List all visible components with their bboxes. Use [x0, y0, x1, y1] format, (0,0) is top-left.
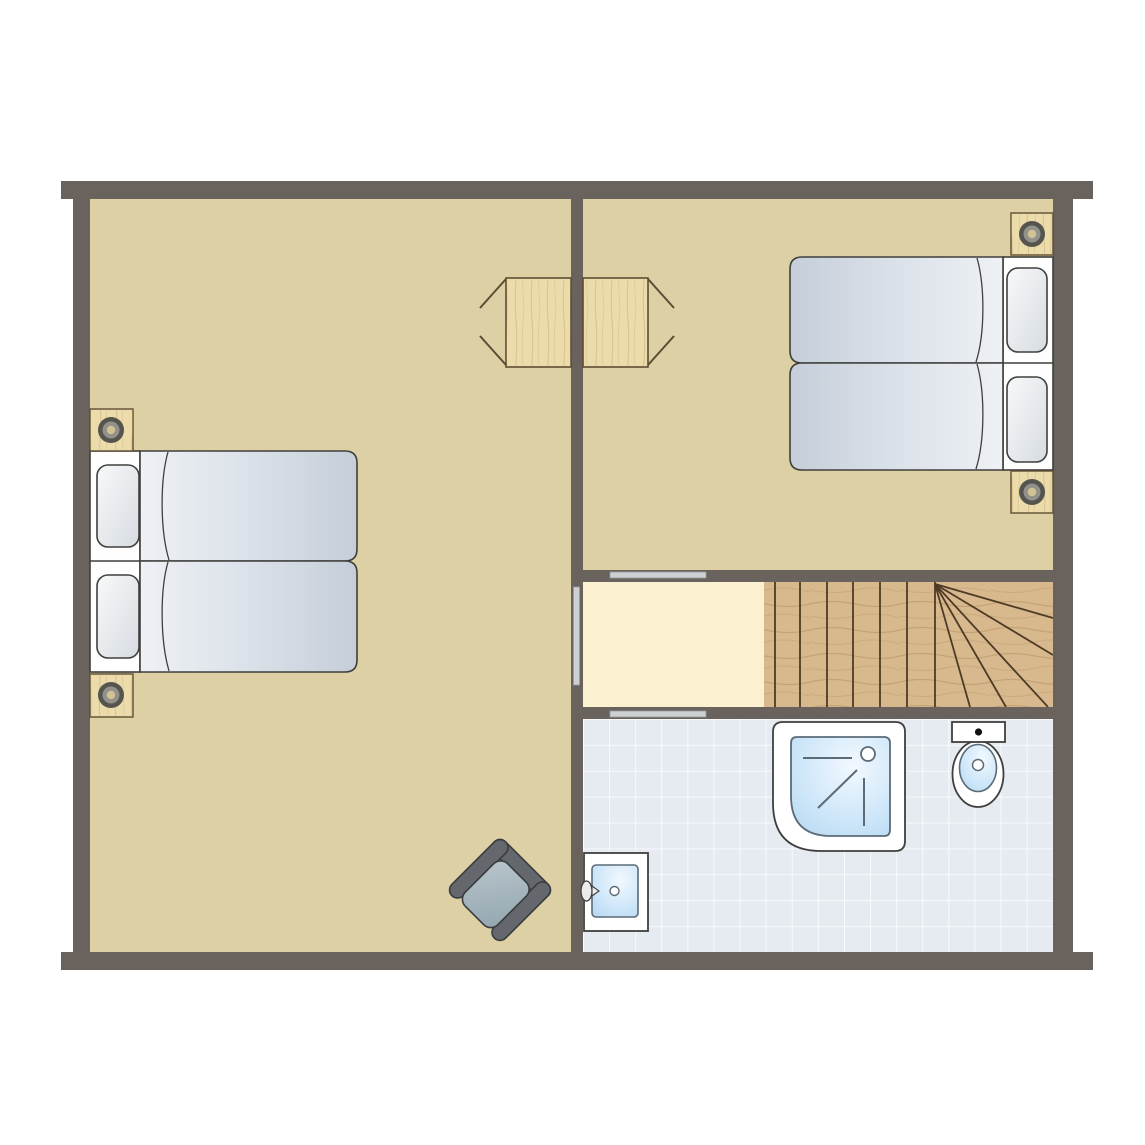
nightstand-right-bottom [1011, 471, 1053, 513]
toilet-flush-button [975, 728, 982, 735]
door-bedroom-right-hallway [610, 572, 706, 578]
lamp-icon [1019, 221, 1045, 247]
duvet [790, 257, 1003, 363]
wall-left [73, 199, 90, 952]
floor-plan [0, 0, 1145, 1145]
door-hallway-bathroom [610, 711, 706, 717]
bed-left-pair [90, 451, 357, 672]
lamp-icon [1019, 479, 1045, 505]
table-grain [583, 278, 648, 367]
shower [773, 722, 905, 851]
lamp-icon [98, 417, 124, 443]
nightstand-right-top [1011, 213, 1053, 255]
pillow [97, 465, 139, 547]
bed-right-pair [790, 257, 1053, 470]
lamp-icon [98, 682, 124, 708]
nightstand-left-top [90, 409, 133, 451]
duvet [140, 451, 357, 561]
shower-head [861, 747, 875, 761]
nightstand-left-bottom [90, 674, 133, 717]
pillow [1007, 377, 1047, 462]
staircase-grain [764, 582, 1053, 707]
door-bedroom-left-hallway [574, 587, 580, 685]
floor-plan-image [0, 0, 1145, 1145]
wall-bottom [61, 952, 1093, 970]
wall-top [61, 181, 1093, 199]
duvet [140, 561, 357, 672]
pillow [1007, 268, 1047, 352]
washbasin-drain [610, 887, 619, 896]
wall-center-vertical [571, 199, 583, 952]
toilet [952, 722, 1005, 807]
duvet [790, 363, 1003, 470]
pillow [97, 575, 139, 658]
wall-right [1053, 199, 1073, 952]
table-grain [506, 278, 571, 367]
hallway-floor [583, 582, 764, 707]
washbasin [581, 853, 648, 931]
toilet-drain [973, 760, 984, 771]
staircase [764, 582, 1053, 707]
